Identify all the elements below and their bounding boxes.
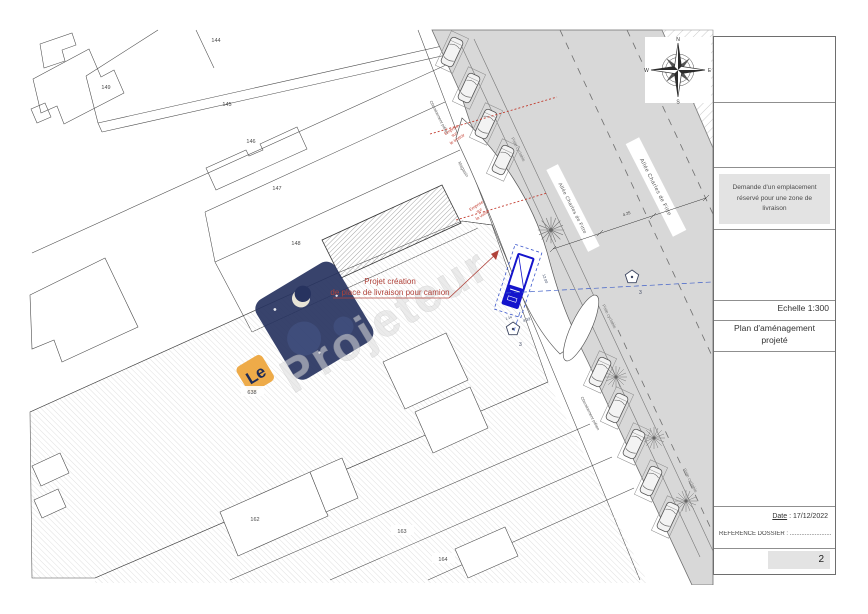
scale-label: Echelle 1:300: [777, 303, 829, 313]
title-block: Demande d'un emplacement réservé pour un…: [713, 36, 836, 575]
tree-marker-label: 3: [519, 342, 522, 348]
reference-line: REFERENCE DOSSIER : ....................…: [719, 531, 831, 537]
divider: [714, 229, 835, 230]
page-number: 2: [768, 551, 830, 569]
parcel-label-162: 162: [250, 517, 259, 523]
date-label: Date: [772, 513, 787, 520]
compass-w: W: [644, 68, 649, 74]
walkway-label: Cheminement piéton: [580, 396, 601, 431]
parcel-label-147: 147: [272, 186, 281, 192]
notice-box: Demande d'un emplacement réservé pour un…: [719, 174, 830, 224]
divider: [714, 506, 835, 507]
compass-rose-icon: N E S W: [644, 37, 712, 106]
divider: [714, 167, 835, 168]
drawing-title: Plan d'aménagement projeté: [714, 323, 835, 346]
parcel-label-164: 164: [438, 557, 447, 563]
parcel-label-163: 163: [397, 529, 406, 535]
parcel-label-146: 146: [246, 139, 255, 145]
divider: [714, 102, 835, 103]
date-line: Date : 17/12/2022: [772, 513, 828, 520]
divider: [714, 320, 835, 321]
parcel-label-638: 638: [247, 390, 256, 396]
tree-marker-label: 3: [639, 290, 642, 296]
compass-n: N: [676, 37, 680, 43]
parcel-label-145: 145: [222, 102, 231, 108]
divider: [714, 300, 835, 301]
plan-sheet: 3 3 Le Projeteur Allée Charles de Fitte …: [0, 0, 868, 614]
date-value: : 17/12/2022: [787, 513, 828, 520]
divider: [714, 548, 835, 549]
parcel-label-148: 148: [291, 241, 300, 247]
callout-line2: de place de livraison pour camion: [330, 288, 449, 297]
callout-line1: Projet création: [364, 277, 416, 286]
parcel-label-149: 149: [101, 85, 110, 91]
parcel-label-144: 144: [211, 38, 220, 44]
divider: [714, 351, 835, 352]
